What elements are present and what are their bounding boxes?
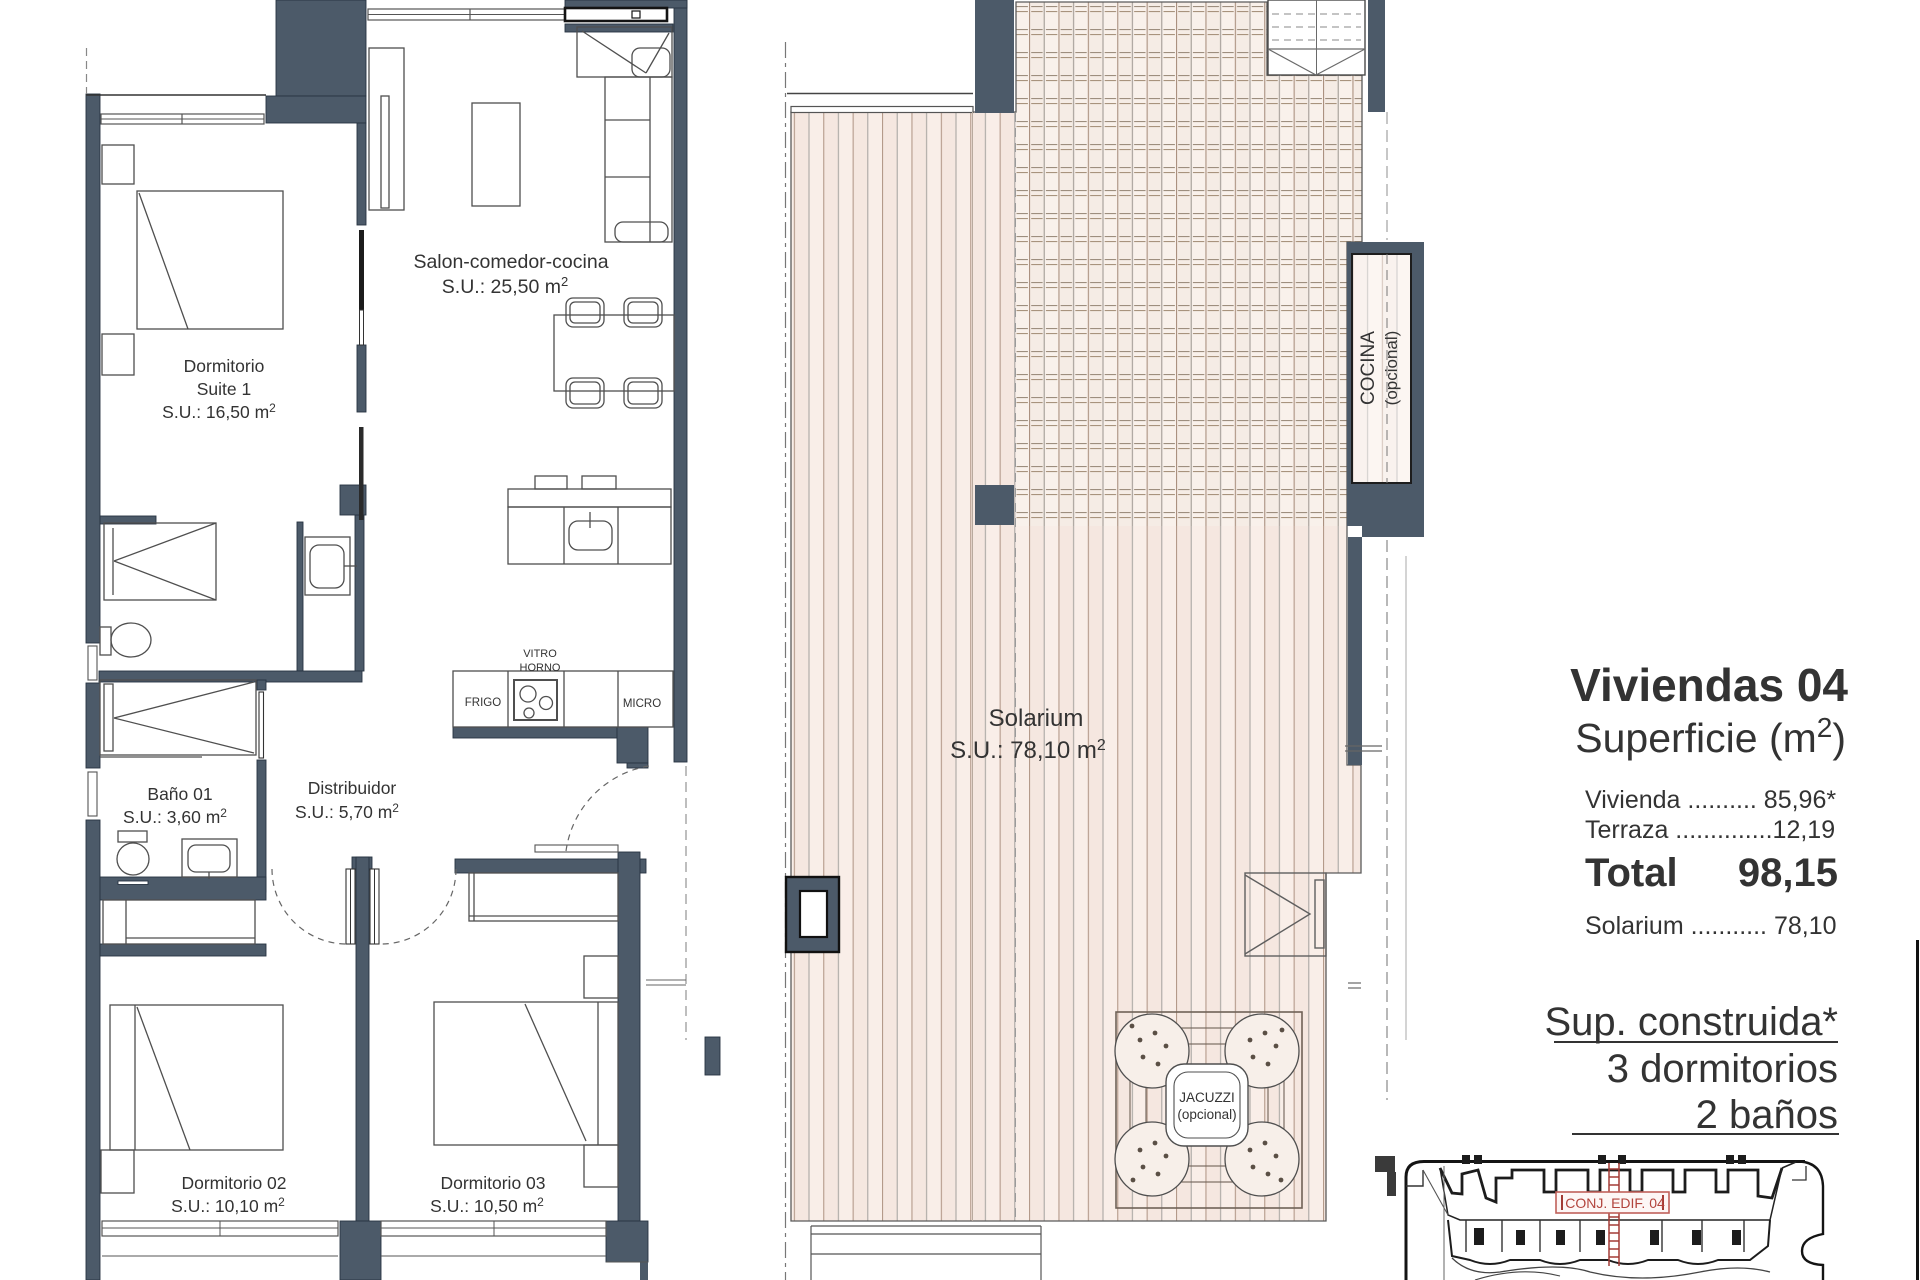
svg-text:Solarium ........... 78,10: Solarium ........... 78,10 [1585,912,1837,940]
svg-text:Baño 01: Baño 01 [147,784,212,804]
svg-text:98,15: 98,15 [1738,851,1838,895]
svg-text:(opcional): (opcional) [1177,1107,1236,1122]
svg-text:Vivienda .......... 85,96*: Vivienda .......... 85,96* [1585,786,1836,814]
svg-text:Salon-comedor-cocina: Salon-comedor-cocina [413,251,608,273]
svg-text:HORNO: HORNO [520,662,561,674]
svg-text:JACUZZI: JACUZZI [1179,1090,1235,1105]
svg-text:VITRO: VITRO [523,648,557,660]
svg-text:MICRO: MICRO [623,698,661,710]
svg-text:Terraza ..............12,19: Terraza ..............12,19 [1585,816,1835,844]
svg-text:S.U.: 10,10 m2: S.U.: 10,10 m2 [171,1195,285,1216]
svg-text:Dormitorio: Dormitorio [184,356,265,376]
svg-text:Sup. construida*: Sup. construida* [1544,1000,1838,1044]
svg-text:S.U.: 5,70 m2: S.U.: 5,70 m2 [295,801,399,822]
svg-text:S.U.: 3,60 m2: S.U.: 3,60 m2 [123,806,227,827]
svg-text:Solarium: Solarium [989,705,1084,732]
svg-text:Total: Total [1585,851,1678,895]
svg-text:Suite 1: Suite 1 [197,379,251,399]
svg-text:(opcional): (opcional) [1382,331,1401,406]
svg-text:2 baños: 2 baños [1696,1093,1838,1137]
svg-text:S.U.: 10,50 m2: S.U.: 10,50 m2 [430,1195,544,1216]
svg-text:S.U.: 78,10 m2: S.U.: 78,10 m2 [950,737,1106,764]
svg-text:COCINA: COCINA [1358,331,1379,405]
svg-text:Dormitorio 02: Dormitorio 02 [181,1173,286,1193]
svg-text:CONJ. EDIF. 04: CONJ. EDIF. 04 [1565,1195,1665,1211]
svg-text:Dormitorio 03: Dormitorio 03 [440,1173,545,1193]
svg-text:Viviendas 04: Viviendas 04 [1570,659,1848,711]
svg-text:FRIGO: FRIGO [465,697,501,709]
svg-text:S.U.: 16,50 m2: S.U.: 16,50 m2 [162,401,276,422]
svg-text:3 dormitorios: 3 dormitorios [1607,1047,1838,1091]
svg-text:S.U.: 25,50 m2: S.U.: 25,50 m2 [442,274,568,298]
svg-text:Distribuidor: Distribuidor [308,778,397,798]
svg-text:Superficie (m2): Superficie (m2) [1575,712,1846,761]
